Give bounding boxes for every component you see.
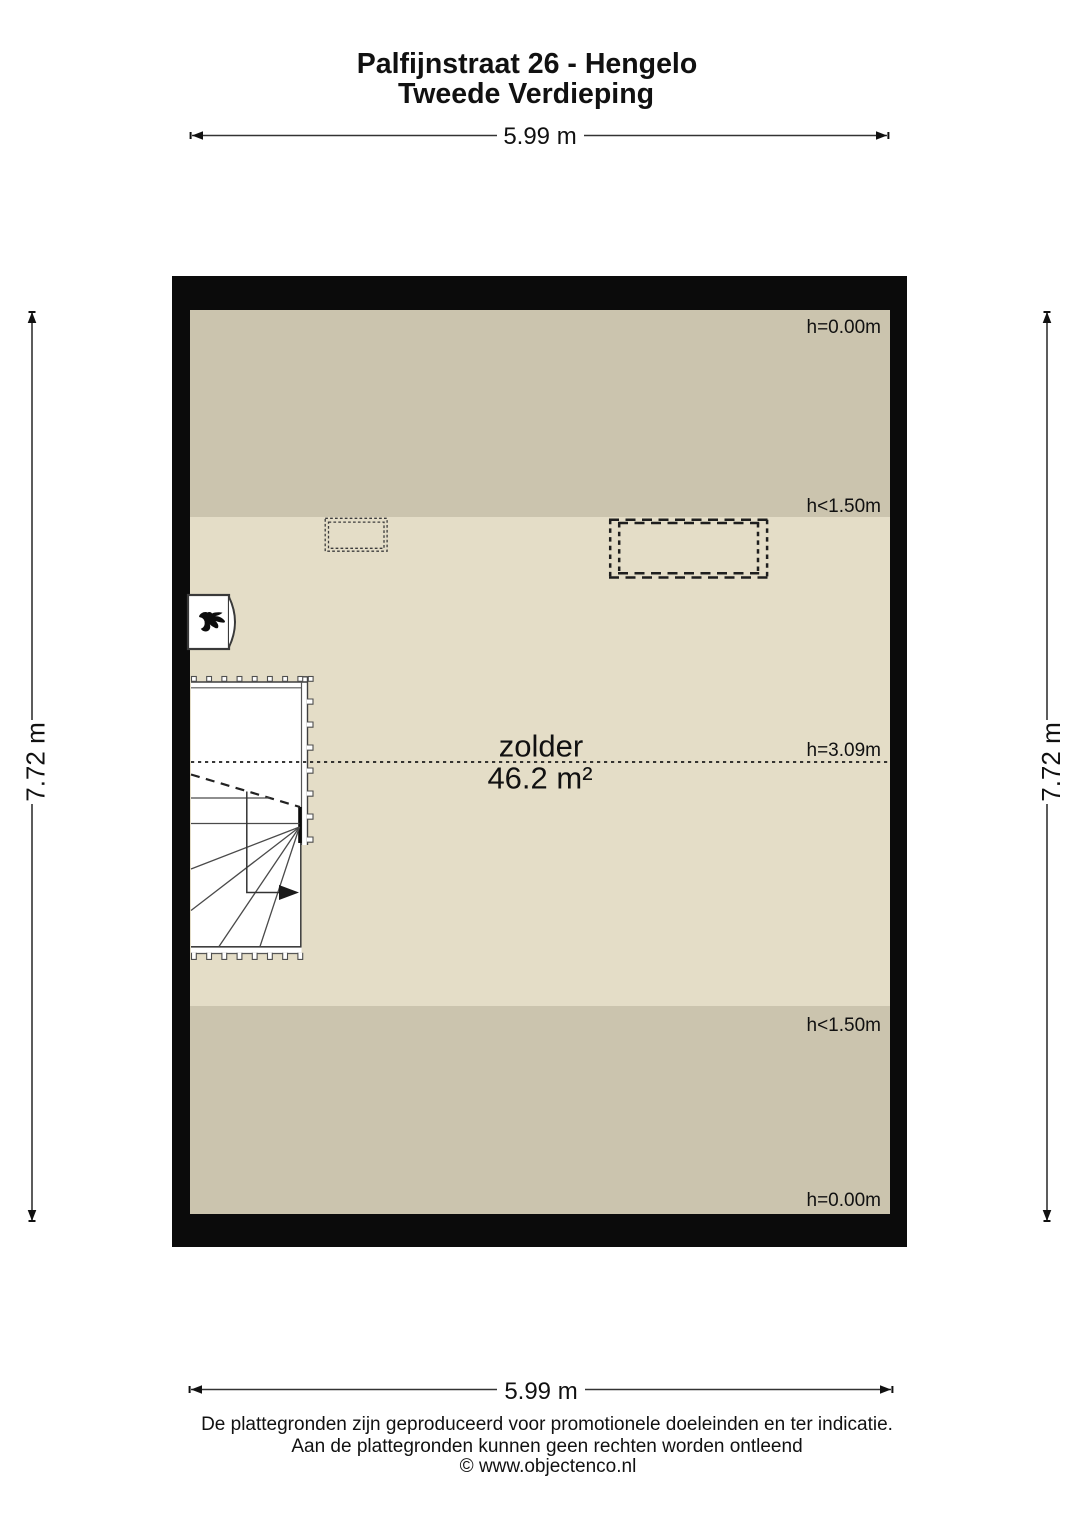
svg-text:7.72 m: 7.72 m (1036, 722, 1066, 802)
svg-text:h=0.00m: h=0.00m (807, 1190, 881, 1211)
svg-text:46.2 m²: 46.2 m² (487, 761, 592, 796)
svg-text:zolder: zolder (499, 729, 583, 764)
svg-text:De plattegronden zijn geproduc: De plattegronden zijn geproduceerd voor … (201, 1414, 893, 1435)
svg-text:Aan de plattegronden kunnen ge: Aan de plattegronden kunnen geen rechten… (291, 1436, 802, 1457)
svg-text:h<1.50m: h<1.50m (807, 1015, 881, 1036)
svg-text:5.99 m: 5.99 m (504, 1378, 577, 1405)
svg-text:5.99 m: 5.99 m (503, 123, 576, 150)
svg-text:7.72 m: 7.72 m (21, 722, 51, 802)
svg-text:Tweede Verdieping: Tweede Verdieping (398, 78, 654, 110)
svg-text:© www.objectenco.nl: © www.objectenco.nl (460, 1456, 637, 1477)
svg-text:h=0.00m: h=0.00m (807, 317, 881, 338)
svg-text:h=3.09m: h=3.09m (807, 740, 881, 761)
svg-text:h<1.50m: h<1.50m (807, 496, 881, 517)
svg-text:Palfijnstraat 26 - Hengelo: Palfijnstraat 26 - Hengelo (357, 48, 698, 80)
